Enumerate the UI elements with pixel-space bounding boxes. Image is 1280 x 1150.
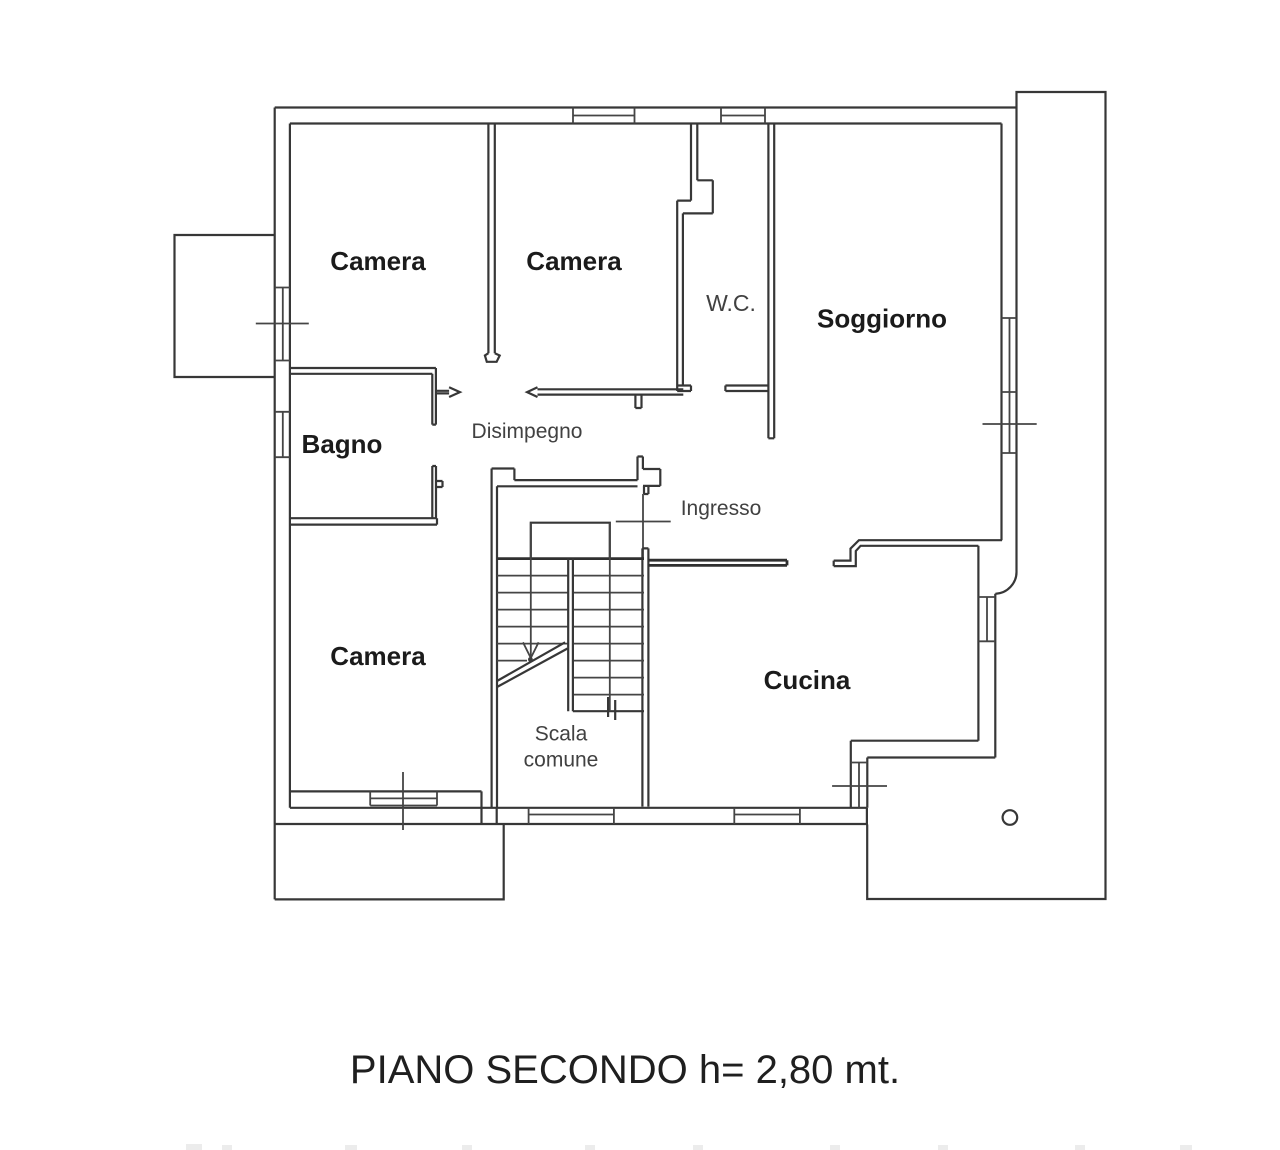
- svg-text:Camera: Camera: [526, 246, 622, 276]
- svg-text:Disimpegno: Disimpegno: [472, 420, 583, 443]
- svg-text:W.C.: W.C.: [706, 290, 756, 316]
- svg-text:Ingresso: Ingresso: [681, 497, 762, 520]
- svg-text:Cucina: Cucina: [764, 665, 851, 695]
- svg-text:Bagno: Bagno: [302, 429, 383, 459]
- svg-text:comune: comune: [524, 749, 599, 772]
- svg-text:Soggiorno: Soggiorno: [817, 304, 947, 334]
- svg-text:Camera: Camera: [330, 641, 426, 671]
- svg-text:Camera: Camera: [330, 246, 426, 276]
- svg-text:PIANO SECONDO h= 2,80 mt.: PIANO SECONDO h= 2,80 mt.: [350, 1048, 900, 1092]
- svg-text:Scala: Scala: [535, 723, 588, 746]
